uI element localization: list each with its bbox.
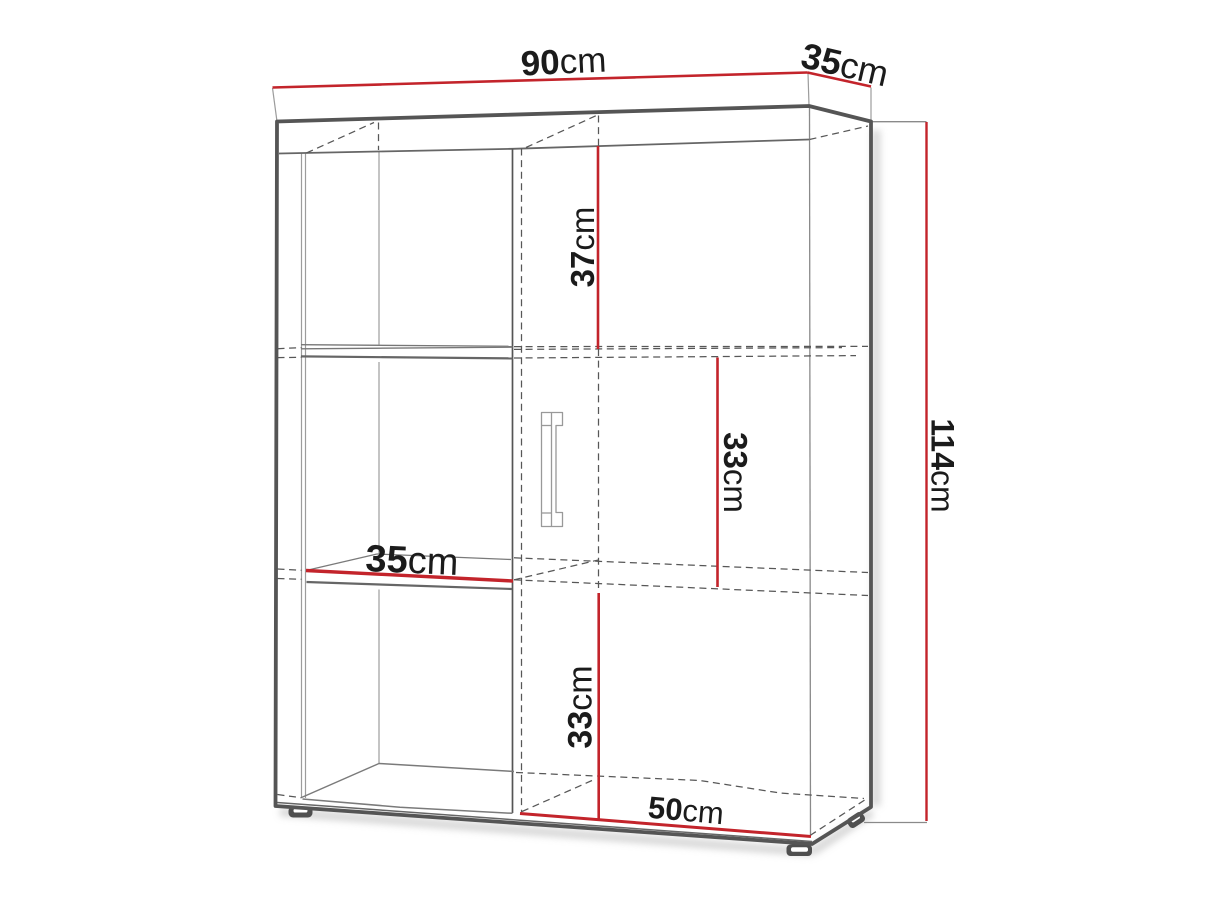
svg-text:90cm: 90cm — [520, 40, 607, 83]
svg-text:50cm: 50cm — [647, 789, 726, 830]
svg-text:37cm: 37cm — [564, 207, 601, 288]
svg-text:33cm: 33cm — [718, 432, 755, 513]
svg-text:33cm: 33cm — [562, 665, 600, 748]
svg-text:114cm: 114cm — [925, 418, 961, 512]
svg-text:35cm: 35cm — [797, 34, 892, 94]
svg-text:35cm: 35cm — [365, 538, 460, 584]
